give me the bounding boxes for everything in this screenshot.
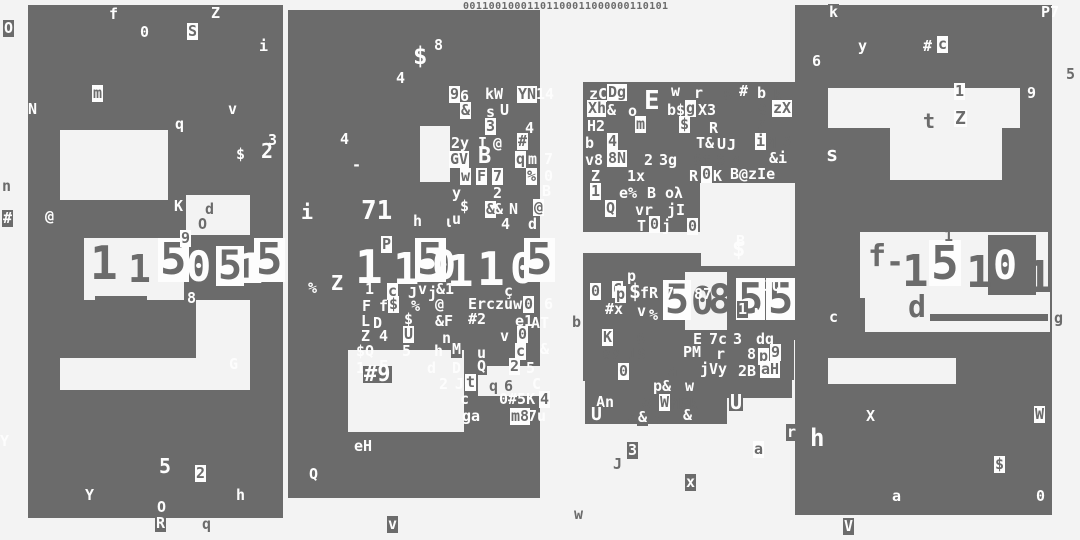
noise-glyph: 5: [1066, 66, 1075, 83]
noise-glyph: 9: [1027, 85, 1036, 102]
noise-glyph: zX: [772, 100, 792, 117]
noise-glyph: H2: [587, 118, 605, 135]
noise-glyph: d: [427, 360, 436, 377]
noise-glyph: N: [509, 201, 518, 218]
noise-glyph: @: [435, 296, 444, 313]
noise-glyph: 4: [539, 391, 550, 408]
noise-glyph: 4: [396, 70, 405, 87]
block-cutout: [700, 183, 795, 233]
noise-glyph: aH: [760, 361, 780, 378]
noise-glyph: E: [643, 93, 661, 110]
big-digit-glyph: 5: [929, 240, 961, 286]
big-digit-glyph: 1: [128, 250, 151, 288]
noise-glyph: 87: [694, 286, 712, 303]
noise-glyph: 8: [747, 346, 756, 363]
noise-glyph: v: [637, 303, 646, 320]
noise-glyph: x: [685, 474, 696, 491]
noise-glyph: 4: [340, 131, 349, 148]
noise-glyph: @: [533, 199, 544, 216]
noise-glyph: &: [606, 102, 617, 119]
noise-glyph: t: [923, 113, 935, 130]
noise-glyph: m: [528, 151, 537, 168]
noise-glyph: r: [786, 424, 797, 441]
noise-glyph: W: [659, 394, 670, 411]
noise-glyph: U: [590, 406, 603, 423]
noise-glyph: 7: [544, 151, 553, 168]
big-digit-glyph: 1: [902, 250, 929, 294]
noise-glyph: N: [754, 306, 763, 323]
big-digit-glyph: 1: [477, 246, 505, 292]
noise-glyph: PM: [682, 344, 702, 361]
noise-glyph: h: [434, 343, 443, 360]
noise-glyph: %: [649, 307, 658, 324]
noise-glyph: &: [540, 341, 549, 358]
noise-glyph: 1: [365, 281, 374, 298]
noise-glyph: Z: [211, 5, 220, 22]
noise-glyph: jVy: [699, 361, 728, 378]
noise-glyph: f: [109, 6, 118, 23]
noise-glyph: K: [713, 168, 722, 185]
noise-glyph: t: [465, 374, 476, 391]
noise-glyph: F: [476, 168, 487, 185]
noise-glyph: 5: [652, 411, 661, 428]
noise-glyph: c: [627, 411, 636, 428]
block-rect: [930, 314, 1048, 321]
noise-glyph: k: [828, 4, 839, 21]
noise-glyph: Q: [476, 358, 487, 375]
block-cutout: [828, 358, 956, 384]
big-digit-glyph: d: [908, 293, 926, 323]
noise-glyph: h: [413, 213, 422, 230]
noise-glyph: 1: [590, 183, 601, 200]
noise-glyph: y: [858, 38, 867, 55]
noise-glyph: -: [352, 157, 361, 174]
noise-glyph: #: [517, 133, 528, 150]
noise-glyph: &: [637, 409, 648, 426]
noise-glyph: i: [301, 204, 313, 221]
noise-glyph: B@zIe: [730, 166, 775, 183]
noise-glyph: h: [236, 487, 245, 504]
noise-glyph: T&: [696, 135, 714, 152]
noise-glyph: $: [236, 146, 245, 163]
noise-glyph: @: [45, 208, 54, 225]
noise-glyph: 0: [523, 296, 534, 313]
noise-glyph: 9: [180, 230, 191, 247]
noise-glyph: 1$: [628, 346, 646, 363]
block-cutout: [196, 300, 250, 358]
noise-glyph: w: [670, 83, 681, 100]
noise-glyph: &: [460, 102, 471, 119]
noise-glyph: 2: [261, 143, 273, 160]
noise-glyph: i: [259, 38, 268, 55]
noise-glyph: 2: [439, 376, 448, 393]
noise-glyph: 2: [644, 152, 653, 169]
noise-glyph: B: [542, 183, 551, 200]
noise-glyph: 6: [723, 87, 732, 104]
noise-glyph: Xh: [587, 100, 607, 117]
noise-glyph: 3: [627, 442, 638, 459]
noise-glyph: 8N: [607, 150, 627, 167]
noise-glyph: J: [613, 456, 622, 473]
noise-glyph: 7: [492, 168, 503, 185]
noise-glyph: 7u: [528, 408, 546, 425]
noise-glyph: X: [866, 408, 875, 425]
noise-glyph: m: [635, 116, 646, 133]
noise-glyph: 14: [536, 86, 554, 103]
big-digit-glyph: f: [868, 242, 886, 272]
noise-glyph: #2: [467, 311, 487, 328]
noise-glyph: @: [493, 135, 502, 152]
noise-glyph: c: [937, 36, 948, 53]
noise-glyph: w: [574, 506, 583, 523]
block-cutout: [60, 130, 168, 200]
noise-glyph: $: [679, 116, 690, 133]
noise-glyph: %: [526, 168, 537, 185]
noise-glyph: JU: [763, 278, 781, 295]
noise-glyph: 0: [140, 24, 149, 41]
noise-glyph: v: [500, 328, 509, 345]
noise-glyph: $: [994, 456, 1005, 473]
noise-glyph: T: [637, 218, 646, 235]
noise-glyph: 1: [737, 301, 748, 318]
noise-glyph: Dg: [607, 84, 627, 101]
noise-glyph: 3g: [659, 152, 677, 169]
noise-glyph: GV: [449, 151, 469, 168]
noise-glyph: B: [478, 148, 491, 165]
noise-glyph: w: [460, 168, 471, 185]
noise-glyph: n: [442, 330, 451, 347]
block-rect: [95, 296, 147, 303]
noise-glyph: h: [810, 430, 824, 447]
block-cutout: [890, 126, 1002, 180]
noise-glyph: %: [308, 280, 317, 297]
noise-glyph: 0: [517, 326, 528, 343]
noise-glyph: 4: [501, 216, 510, 233]
noise-glyph: K: [602, 329, 613, 346]
noise-glyph: s8: [602, 346, 620, 363]
noise-glyph: 0: [590, 283, 601, 300]
noise-glyph: j: [662, 218, 671, 235]
noise-glyph: 3: [485, 118, 496, 135]
noise-glyph: 5: [159, 458, 171, 475]
noise-glyph: 7: [665, 285, 674, 302]
noise-glyph: v: [387, 516, 398, 533]
noise-glyph: e%: [619, 185, 637, 202]
noise-glyph: 0: [1036, 488, 1045, 505]
noise-glyph: m: [92, 85, 103, 102]
noise-glyph: u: [451, 211, 462, 228]
block-cutout: [865, 292, 1050, 332]
noise-glyph: 2: [509, 358, 520, 375]
noise-glyph: Q: [309, 466, 318, 483]
noise-glyph: v: [227, 101, 238, 118]
noise-glyph: q: [515, 151, 526, 168]
noise-glyph: 0: [687, 218, 698, 235]
noise-glyph: R: [689, 168, 698, 185]
noise-glyph: R: [155, 515, 166, 532]
noise-glyph: oλ: [665, 185, 683, 202]
big-digit-glyph: 5: [254, 238, 285, 282]
noise-glyph: q: [489, 378, 498, 395]
noise-glyph: AT: [531, 315, 549, 332]
block-cutout: [60, 358, 250, 390]
noise-glyph: v: [418, 281, 427, 298]
noise-glyph: 2B: [737, 363, 757, 380]
noise-glyph: 0: [618, 363, 629, 380]
noise-glyph: 0#5K: [499, 391, 535, 408]
noise-glyph: 6: [544, 296, 553, 313]
noise-glyph: 0: [649, 216, 660, 233]
noise-glyph: 2: [195, 465, 206, 482]
noise-glyph: V: [843, 518, 854, 535]
noise-glyph: 3: [733, 331, 742, 348]
noise-glyph: U: [500, 102, 509, 119]
noise-glyph: a: [753, 441, 764, 458]
noise-glyph: a: [891, 488, 902, 505]
noise-glyph: U: [716, 136, 727, 153]
noise-glyph: YN: [517, 86, 537, 103]
noise-glyph: c: [460, 391, 469, 408]
noise-glyph: X3: [698, 102, 716, 119]
noise-glyph: f: [379, 298, 388, 315]
art-canvas: 00110010001101100011000000110101 1150515…: [0, 0, 1080, 540]
noise-glyph: #: [738, 83, 749, 100]
noise-glyph: #: [923, 38, 932, 55]
noise-glyph: U: [729, 394, 743, 411]
noise-glyph: Z: [331, 275, 343, 292]
noise-glyph: $: [732, 241, 745, 258]
noise-glyph: 9: [449, 86, 460, 103]
noise-glyph: N: [28, 101, 37, 118]
noise-glyph: E: [794, 261, 803, 278]
noise-glyph: $: [388, 296, 399, 313]
noise-glyph: O: [198, 216, 207, 233]
noise-glyph: 1x: [627, 168, 645, 185]
noise-glyph: 9: [770, 344, 781, 361]
noise-glyph: #: [2, 210, 13, 227]
noise-glyph: 6: [812, 53, 821, 70]
noise-glyph: q: [175, 116, 184, 133]
noise-glyph: G: [229, 356, 238, 373]
big-digit-glyph: 1: [1026, 256, 1053, 300]
noise-glyph: M: [451, 341, 462, 358]
noise-glyph: Q: [605, 200, 616, 217]
big-digit-glyph: 1: [966, 251, 993, 295]
noise-glyph: $: [413, 48, 427, 65]
big-digit-glyph: 0: [993, 246, 1017, 286]
noise-glyph: Y: [85, 487, 94, 504]
noise-glyph: #x: [605, 301, 623, 318]
noise-glyph: #9: [363, 366, 392, 383]
noise-glyph: &: [682, 407, 693, 424]
big-digit-glyph: 0: [186, 246, 211, 288]
noise-glyph: 0: [701, 166, 712, 183]
noise-glyph: i: [755, 133, 766, 150]
noise-glyph: &F: [435, 313, 453, 330]
noise-glyph: w: [684, 378, 695, 395]
noise-glyph: 1: [944, 228, 953, 245]
noise-glyph: 8: [434, 37, 443, 54]
noise-glyph: eH: [354, 438, 372, 455]
noise-glyph: P: [381, 236, 392, 253]
noise-glyph: Z: [954, 110, 967, 127]
noise-glyph: $Q: [356, 343, 374, 360]
noise-glyph: 71: [361, 203, 392, 220]
noise-glyph: fR: [640, 285, 658, 302]
noise-glyph: s: [826, 146, 838, 163]
noise-glyph: b: [756, 85, 767, 102]
noise-glyph: W: [1034, 406, 1045, 423]
block-cutout: [186, 195, 250, 235]
noise-glyph: 5: [402, 343, 411, 360]
noise-glyph: d: [528, 216, 537, 233]
noise-glyph: 4: [607, 133, 618, 150]
noise-glyph: 8: [187, 290, 196, 307]
noise-glyph: b: [585, 135, 594, 152]
noise-glyph: 4: [379, 328, 388, 345]
big-digit-glyph: 5: [524, 238, 555, 282]
noise-glyph: c: [829, 309, 838, 326]
noise-glyph: A: [783, 133, 792, 150]
noise-glyph: b: [572, 314, 581, 331]
big-digit-glyph: 1: [90, 240, 118, 286]
noise-glyph: ga: [462, 408, 480, 425]
noise-glyph: 1: [954, 83, 965, 100]
noise-glyph: O: [3, 20, 14, 37]
noise-glyph: g: [1054, 310, 1063, 327]
noise-glyph: q: [202, 516, 211, 533]
noise-glyph: S: [187, 23, 198, 40]
noise-glyph: Y: [0, 433, 9, 450]
noise-glyph: P7: [1041, 4, 1059, 21]
block-cutout: [420, 126, 450, 182]
noise-glyph: n: [2, 178, 11, 195]
noise-glyph: B: [647, 185, 656, 202]
noise-glyph: U: [403, 326, 414, 343]
noise-glyph: K: [173, 198, 184, 215]
